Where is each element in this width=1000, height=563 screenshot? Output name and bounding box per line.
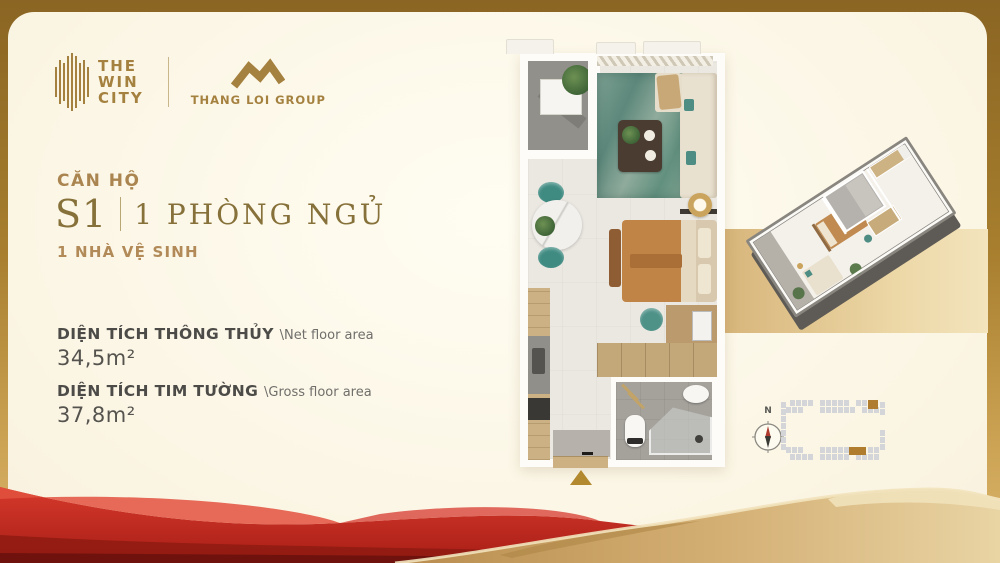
dish (645, 150, 656, 161)
unit-type: 1 PHÒNG NGỦ (134, 198, 386, 231)
win-city-line: THE (98, 58, 144, 74)
highlighted-unit (849, 447, 866, 455)
unit-title-row: S1 1 PHÒNG NGỦ (55, 192, 386, 236)
coffee-table (618, 120, 662, 172)
area-info: DIỆN TÍCH THÔNG THỦY \Net floor area 34,… (57, 325, 374, 439)
thang-loi-name: THANG LOI GROUP (191, 93, 326, 107)
laptop (692, 311, 712, 341)
shower-head (695, 435, 703, 443)
dining-chair (538, 247, 564, 268)
toilet (625, 415, 645, 447)
door-handle (582, 452, 593, 455)
bathroom-sink (683, 385, 709, 403)
wardrobe (597, 343, 717, 377)
net-area-label: DIỆN TÍCH THÔNG THỦY \Net floor area (57, 325, 374, 343)
unit-label: CĂN HỘ (57, 171, 140, 191)
bed-pillow (698, 264, 711, 294)
compass-north-label: N (764, 406, 772, 416)
net-area-value: 34,5m² (57, 346, 374, 370)
unit-bathrooms: 1 NHÀ VỆ SINH (57, 243, 199, 261)
bed (622, 220, 717, 302)
logo-divider (168, 57, 169, 107)
entry-threshold (553, 456, 608, 468)
dining-plant (535, 216, 555, 236)
highlighted-unit (868, 400, 878, 409)
ac-ledge (643, 41, 701, 54)
curtain-strip (597, 56, 713, 66)
ac-ledge (506, 39, 554, 54)
balcony-wall (528, 150, 600, 159)
brochure-slide: THE WIN CITY THANG LOI GROUP CĂN HỘ S1 1… (0, 0, 1000, 563)
entrance-arrow-icon (570, 470, 592, 485)
win-city-line: WIN (98, 74, 144, 90)
thang-loi-logo: THANG LOI GROUP (191, 58, 326, 107)
mountain-zigzag-icon (231, 58, 285, 90)
win-city-line: CITY (98, 90, 144, 106)
kitchen-stove (528, 398, 550, 420)
site-plan (776, 394, 892, 474)
floor-plan-2d (520, 53, 725, 467)
win-city-wordmark: THE WIN CITY (98, 58, 144, 106)
bed-bench (609, 229, 621, 287)
gross-area-label-vi: DIỆN TÍCH TIM TƯỜNG (57, 382, 258, 400)
dining-table (532, 200, 582, 250)
net-area-label-en: \Net floor area (280, 328, 374, 343)
desk (666, 305, 717, 347)
win-city-bars-icon (55, 53, 89, 111)
desk-chair (640, 308, 663, 331)
sofa-pillow (686, 151, 696, 165)
toilet-tank (627, 438, 643, 444)
sofa-pillow (684, 99, 694, 111)
floor-plan-3d (733, 122, 968, 337)
table-plant (622, 126, 640, 144)
dish (644, 130, 655, 141)
sofa-throw-blanket (656, 74, 681, 110)
unit-title-divider (120, 197, 121, 231)
sofa (680, 73, 717, 198)
gross-area-label: DIỆN TÍCH TIM TƯỜNG \Gross floor area (57, 382, 374, 400)
header: THE WIN CITY THANG LOI GROUP (55, 52, 326, 112)
win-city-logo: THE WIN CITY (55, 53, 144, 111)
gross-area-value: 37,8m² (57, 403, 374, 427)
unit-code: S1 (55, 192, 107, 236)
bed-pillow (698, 228, 711, 258)
gross-area-label-en: \Gross floor area (264, 385, 372, 400)
floor-lamp (688, 193, 712, 217)
net-area-label-vi: DIỆN TÍCH THÔNG THỦY (57, 325, 274, 343)
bed-blanket (630, 254, 682, 268)
kitchen-sink (532, 348, 545, 374)
bathroom (611, 377, 717, 460)
ac-ledge (596, 42, 636, 54)
kitchen-counter (528, 288, 550, 460)
